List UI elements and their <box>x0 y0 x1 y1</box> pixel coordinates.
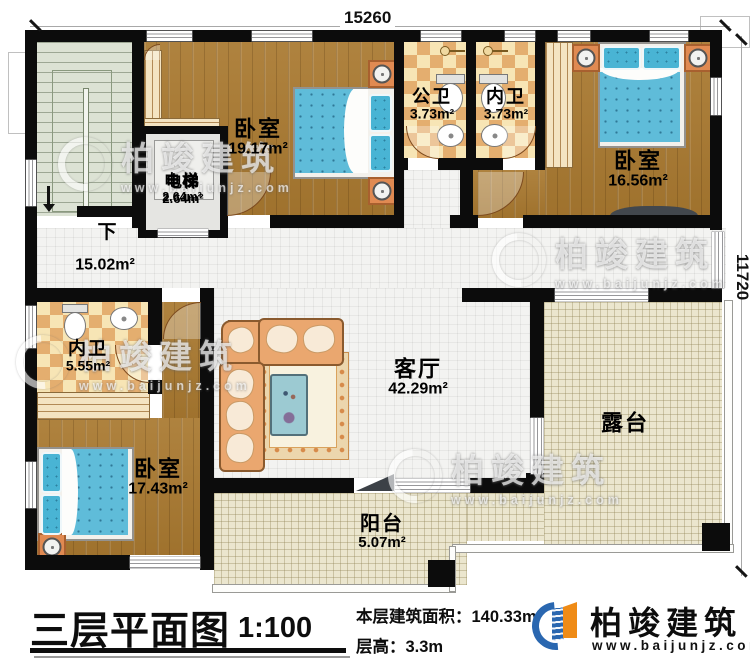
toilet-ensuite-left <box>64 312 86 340</box>
window-terrace-top <box>555 289 648 301</box>
lamp-icon <box>43 538 62 557</box>
balcony-terrace-connector-floor <box>467 493 544 541</box>
wall-corridor-top-b <box>523 215 722 228</box>
wall-terrace-top-b <box>648 288 722 302</box>
room-name: 电梯 <box>162 175 203 192</box>
label-elevator-front: 电梯 2.64m² <box>162 175 203 205</box>
room-name: 内卫 <box>484 87 528 106</box>
wall-bath-bottom-a <box>394 158 408 170</box>
pillow-bedroom-tl-2 <box>369 134 392 172</box>
window-left-3 <box>26 462 36 508</box>
nightstand-bedroom-tr-1 <box>572 44 600 72</box>
title-underline-thick <box>30 648 346 653</box>
lamp-icon <box>689 49 708 68</box>
room-area: 42.29m² <box>388 381 448 398</box>
room-name: 卧室 <box>608 150 668 173</box>
stair-down-arrow <box>47 186 50 206</box>
wall-bath-right-side <box>535 42 545 170</box>
lamp-icon <box>373 182 392 201</box>
room-area: 2.64m² <box>162 192 203 206</box>
label-terrace: 露台 <box>601 413 649 436</box>
wall-living-terrace-post <box>526 473 544 493</box>
closet-bedroom-tr <box>545 42 573 168</box>
room-area: 3.73m² <box>484 106 528 121</box>
nightstand-bedroom-tr-2 <box>684 44 712 72</box>
wall-bathleft-top <box>25 288 162 302</box>
label-ensuite-bath-top: 内卫 3.73m² <box>484 87 528 120</box>
room-name: 阳台 <box>358 514 406 535</box>
floor-plan-canvas: 卧室 19.17m² 电梯 2.64m² 公卫 3.73m² 内卫 3.73m²… <box>0 0 750 664</box>
window-right-bedroom <box>711 78 721 115</box>
room-area: 5.07m² <box>358 535 406 551</box>
sink-public-bath <box>437 124 464 147</box>
pillow-bedroom-tr-2 <box>642 46 681 70</box>
sink-ensuite-left <box>110 307 138 330</box>
pillow-bedroom-tl-1 <box>369 94 392 132</box>
room-area: 5.55m² <box>66 358 110 373</box>
label-stairs-down: 下 <box>97 223 118 243</box>
window-top-2 <box>252 31 312 41</box>
stairs-direction: 下 <box>97 223 118 243</box>
pillow-bedroom-bl-2 <box>41 494 62 535</box>
label-balcony: 阳台 5.07m² <box>358 514 406 550</box>
wall-bedroomtl-bottom-b <box>270 215 398 228</box>
wall-living-terrace <box>530 288 544 418</box>
lamp-icon <box>577 49 596 68</box>
label-bedroom-bl: 卧室 17.43m² <box>128 458 188 498</box>
room-area: 15.02m² <box>75 258 135 275</box>
room-name: 卧室 <box>228 118 288 141</box>
room-name: 卧室 <box>128 458 188 481</box>
sliding-door-living-terrace <box>531 418 543 474</box>
room-name: 客厅 <box>388 358 448 381</box>
elevator-door <box>158 229 208 237</box>
shower-pipe-public-bath <box>449 50 465 52</box>
wall-corridor-top-a <box>450 215 478 228</box>
terrace-corner-post <box>702 523 730 551</box>
sheet-fold-bedroom-tl <box>344 89 368 173</box>
closet-bedroom-tl-vertical <box>144 50 162 122</box>
stair-well-inner <box>52 70 112 212</box>
wall-bottom-left <box>25 555 130 570</box>
shower-pipe-ensuite-top <box>492 50 508 52</box>
brand-logo: 柏竣建筑 www.baijunjz.com <box>532 598 746 656</box>
label-public-bath: 公卫 3.73m² <box>410 87 454 120</box>
floor-height-text: 层高：3.3m <box>356 633 443 657</box>
room-area: 3.73m² <box>410 106 454 121</box>
dimension-top-value: 15260 <box>340 8 395 28</box>
nightstand-bedroom-tl-2 <box>368 177 396 205</box>
wall-bathleft-right-b <box>148 380 162 394</box>
room-name: 露台 <box>601 413 649 436</box>
window-left-1 <box>26 160 36 206</box>
pillow-bedroom-tr-1 <box>602 46 641 70</box>
lamp-icon <box>373 65 392 84</box>
wall-bath-left-side <box>394 42 404 228</box>
brand-logo-icon <box>532 600 582 650</box>
balcony-bottom-railing <box>212 584 456 593</box>
wall-bedroombl-right <box>200 288 214 570</box>
pillow-bedroom-bl-1 <box>41 452 62 493</box>
room-area: 19.17m² <box>228 141 288 158</box>
label-hallway-area: 15.02m² <box>75 258 135 275</box>
window-hallway-end <box>712 232 724 288</box>
dimension-right-value: 11720 <box>732 238 750 316</box>
title-underline-thin <box>34 656 350 658</box>
room-area: 16.56m² <box>608 173 668 190</box>
window-top-5 <box>558 31 590 41</box>
plan-scale: 1:100 <box>238 612 312 645</box>
wall-balcony-top-a <box>214 478 354 493</box>
label-bedroom-tl: 卧室 19.17m² <box>228 118 288 158</box>
window-top-1 <box>147 31 192 41</box>
wall-bathleft-right-a <box>148 288 162 345</box>
mattress-bedroom-tr <box>600 72 680 142</box>
terrace-bottom-railing <box>452 544 734 553</box>
room-name: 公卫 <box>410 87 454 106</box>
nightstand-bedroom-tl-1 <box>368 60 396 88</box>
wall-top <box>25 30 722 42</box>
logo-tower-orange <box>563 602 577 638</box>
window-top-6 <box>650 31 688 41</box>
window-top-3 <box>421 31 461 41</box>
floor-area-text: 本层建筑面积：140.33m² <box>356 603 542 627</box>
sheet-fold-bedroom-bl <box>62 449 78 535</box>
label-living-room: 客厅 42.29m² <box>388 358 448 398</box>
wall-stair-bottom <box>77 206 132 217</box>
closet-bedroom-bl <box>37 392 150 420</box>
terrace-right-railing <box>724 300 733 552</box>
wall-bath-divider <box>466 42 476 170</box>
stair-down-arrowhead <box>43 204 55 218</box>
brand-website: www.baijunjz.com <box>592 638 750 653</box>
window-left-2 <box>26 306 36 348</box>
wall-right-top <box>710 30 722 230</box>
wall-balcony-top-b <box>470 478 528 493</box>
label-ensuite-bath-left: 内卫 5.55m² <box>66 339 110 372</box>
room-area: 17.43m² <box>128 481 188 498</box>
coffee-table <box>270 374 308 436</box>
balcony-corner-post <box>428 560 455 587</box>
window-bedroom-bl-bottom <box>130 557 200 568</box>
sliding-door-balcony <box>395 479 470 492</box>
label-bedroom-tr: 卧室 16.56m² <box>608 150 668 190</box>
room-name: 内卫 <box>66 339 110 358</box>
wall-vestibule-stub <box>460 158 473 218</box>
stair-rail <box>83 88 89 214</box>
window-top-4 <box>505 31 535 41</box>
